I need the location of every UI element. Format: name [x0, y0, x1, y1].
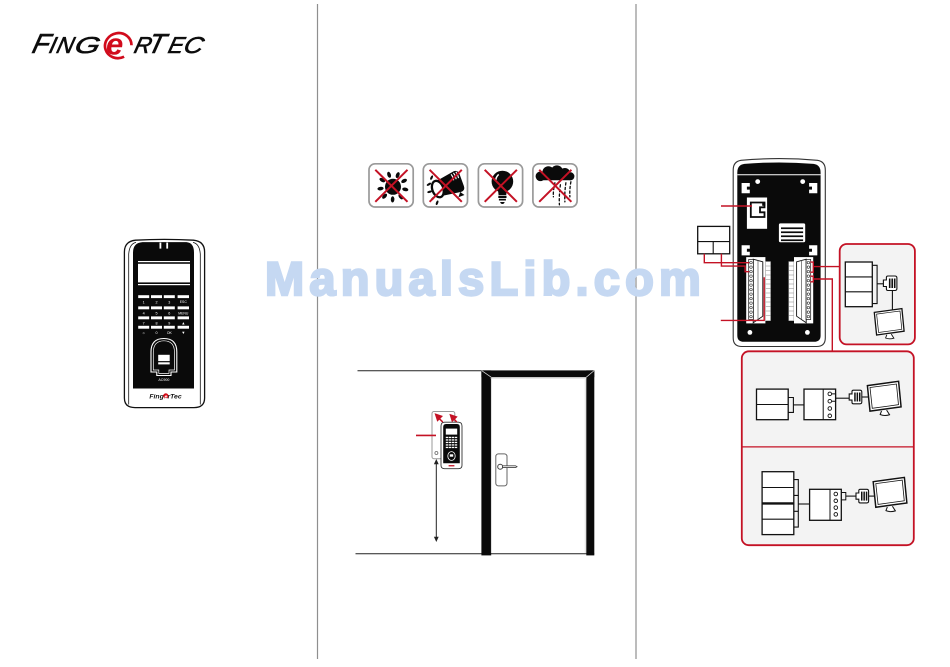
svg-text:▲: ▲	[181, 321, 185, 326]
svg-text:6: 6	[168, 312, 170, 316]
svg-text:1: 1	[143, 301, 145, 305]
svg-text:ESC: ESC	[180, 300, 188, 304]
svg-text:5: 5	[155, 312, 157, 316]
svg-text:2: 2	[155, 301, 157, 305]
svg-text:e: e	[164, 394, 167, 400]
svg-text:4: 4	[143, 312, 145, 316]
svg-text:0: 0	[155, 331, 157, 335]
svg-text:ManualsLib.com: ManualsLib.com	[265, 252, 706, 305]
svg-text:AC900: AC900	[158, 378, 169, 382]
svg-text:G: G	[72, 32, 103, 57]
svg-text:8: 8	[155, 322, 157, 326]
svg-text:OK: OK	[167, 331, 173, 335]
svg-text:☼: ☼	[142, 331, 145, 335]
svg-text:3: 3	[168, 301, 170, 305]
svg-text:9: 9	[168, 322, 170, 326]
svg-text:MENU: MENU	[178, 311, 189, 315]
svg-text:7: 7	[143, 322, 145, 326]
svg-text:▼: ▼	[181, 330, 185, 335]
